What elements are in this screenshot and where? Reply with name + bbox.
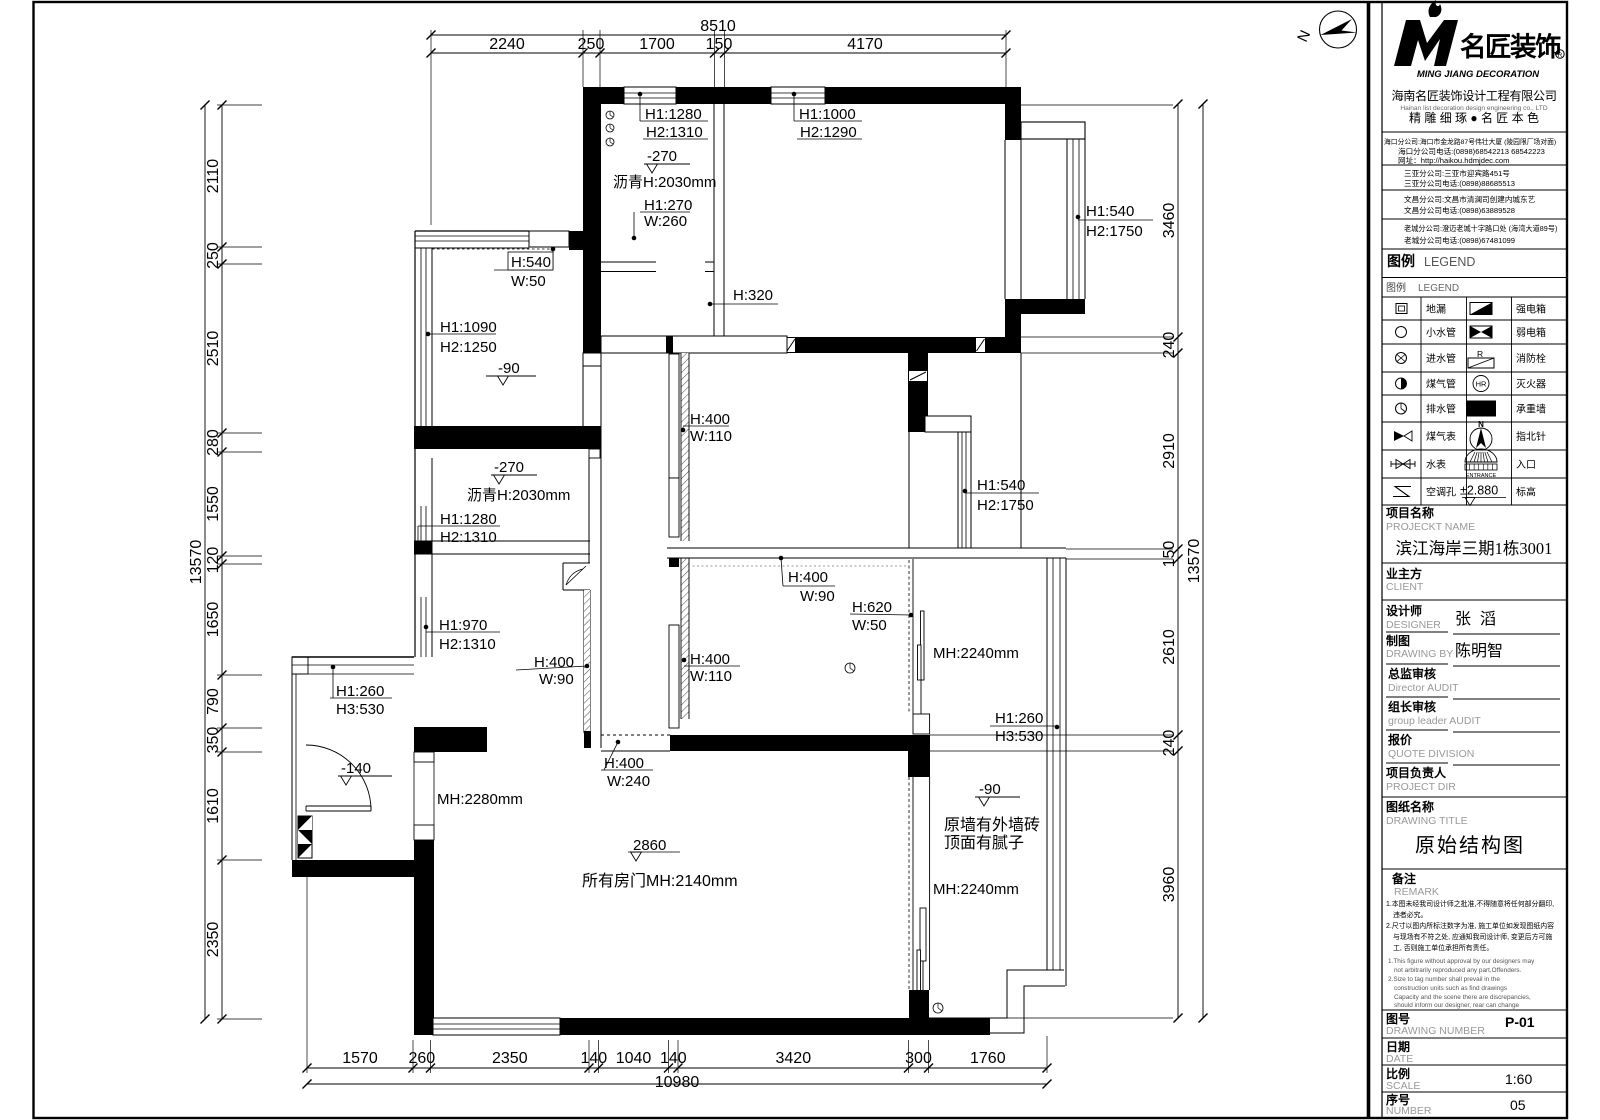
svg-text:P-01: P-01: [1505, 1014, 1535, 1030]
svg-text:老城分公司电话:(0898)67481099: 老城分公司电话:(0898)67481099: [1404, 235, 1515, 245]
svg-text:项目名称: 项目名称: [1386, 505, 1434, 520]
svg-text:海口分公司电话:(0898)68542213 6854222: 海口分公司电话:(0898)68542213 68542223: [1398, 146, 1545, 156]
svg-text:CLIENT: CLIENT: [1386, 581, 1424, 593]
svg-text:滨江海岸三期1栋3001: 滨江海岸三期1栋3001: [1396, 539, 1553, 558]
svg-text:日期: 日期: [1386, 1039, 1410, 1054]
svg-text:小水管: 小水管: [1426, 326, 1456, 339]
svg-text:DRAWING BY: DRAWING BY: [1386, 648, 1453, 660]
svg-text:construction units such as fin: construction units such as find drawings: [1394, 985, 1507, 992]
svg-text:文昌分公司:文昌市清澜司创建内城东艺: 文昌分公司:文昌市清澜司创建内城东艺: [1404, 194, 1536, 204]
svg-text:Director AUDIT: Director AUDIT: [1388, 682, 1459, 694]
svg-text:1:60: 1:60: [1505, 1071, 1532, 1087]
svg-text:图号: 图号: [1386, 1011, 1410, 1026]
svg-text:入口: 入口: [1516, 460, 1536, 471]
svg-text:group leader AUDIT: group leader AUDIT: [1388, 715, 1481, 727]
svg-text:张 滔: 张 滔: [1455, 610, 1496, 628]
svg-text:图纸名称: 图纸名称: [1386, 799, 1434, 814]
svg-text:精 雕 细 琢 ● 名 匠 本 色: 精 雕 细 琢 ● 名 匠 本 色: [1409, 110, 1539, 125]
svg-text:比例: 比例: [1386, 1066, 1410, 1081]
svg-text:工, 否则施工单位承担所有责任。: 工, 否则施工单位承担所有责任。: [1393, 943, 1493, 952]
svg-text:QUOTE DIVISION: QUOTE DIVISION: [1388, 748, 1474, 760]
svg-text:空调孔: 空调孔: [1426, 486, 1456, 499]
svg-text:煤气管: 煤气管: [1426, 378, 1456, 391]
svg-text:DATE: DATE: [1386, 1053, 1413, 1065]
svg-text:LEGEND: LEGEND: [1424, 255, 1475, 269]
svg-text:三亚分公司:三亚市迎宾路451号: 三亚分公司:三亚市迎宾路451号: [1404, 168, 1510, 178]
svg-text:MING JIANG DECORATION: MING JIANG DECORATION: [1417, 69, 1540, 80]
svg-text:PROJECT DIR: PROJECT DIR: [1386, 781, 1456, 793]
svg-text:文昌分公司电话:(0898)63889528: 文昌分公司电话:(0898)63889528: [1404, 205, 1515, 215]
svg-text:1.This figure without approval: 1.This figure without approval by our de…: [1388, 958, 1535, 965]
svg-text:R: R: [1558, 53, 1563, 59]
svg-text:REMARK: REMARK: [1394, 886, 1439, 898]
svg-text:网址：http://haikou.hdmjdec.com: 网址：http://haikou.hdmjdec.com: [1398, 155, 1509, 165]
svg-text:SCALE: SCALE: [1386, 1080, 1420, 1092]
svg-text:名匠装饰: 名匠装饰: [1460, 32, 1561, 62]
svg-text:老城分公司:澄迈老城十字路口处 (海湾大道89号): 老城分公司:澄迈老城十字路口处 (海湾大道89号): [1404, 224, 1557, 233]
svg-text:2.Size to tag number shall pre: 2.Size to tag number shall prevail in th…: [1388, 976, 1500, 983]
svg-text:业主方: 业主方: [1386, 566, 1422, 581]
svg-text:备注: 备注: [1391, 871, 1416, 886]
svg-text:制图: 制图: [1386, 633, 1410, 648]
svg-text:强电箱: 强电箱: [1516, 303, 1546, 316]
svg-text:项目负责人: 项目负责人: [1386, 765, 1447, 780]
svg-text:三亚分公司电话:(0898)88685513: 三亚分公司电话:(0898)88685513: [1404, 178, 1515, 188]
svg-text:消防栓: 消防栓: [1516, 352, 1546, 365]
svg-text:报价: 报价: [1388, 732, 1413, 747]
svg-text:违者必究。: 违者必究。: [1393, 910, 1427, 919]
svg-text:排水管: 排水管: [1426, 403, 1456, 416]
svg-text:海口分公司:海口市金龙路87号伟壮大厦 (陵园限厂场对面): 海口分公司:海口市金龙路87号伟壮大厦 (陵园限厂场对面): [1384, 137, 1556, 146]
svg-text:承重墙: 承重墙: [1516, 403, 1546, 416]
svg-text:弱电箱: 弱电箱: [1516, 326, 1546, 339]
svg-text:图例: 图例: [1386, 281, 1406, 294]
svg-text:设计师: 设计师: [1386, 603, 1422, 618]
svg-text:DRAWING NUMBER: DRAWING NUMBER: [1386, 1025, 1485, 1037]
svg-text:should inform our designer, re: should inform our designer, rear can cha…: [1394, 1002, 1519, 1009]
svg-text:原始结构图: 原始结构图: [1415, 834, 1525, 857]
svg-text:NUMBER: NUMBER: [1386, 1105, 1432, 1117]
svg-text:水表: 水表: [1426, 458, 1446, 471]
svg-text:标高: 标高: [1516, 486, 1536, 499]
svg-text:煤气表: 煤气表: [1426, 430, 1456, 443]
svg-text:Capacity and the scene there a: Capacity and the scene there are discrep…: [1394, 994, 1531, 1001]
svg-text:LEGEND: LEGEND: [1418, 283, 1459, 294]
svg-text:DESIGNER: DESIGNER: [1386, 619, 1441, 631]
svg-text:进水管: 进水管: [1426, 352, 1456, 365]
svg-text:1.本图未经我司设计师之批准,不得随意将任何部分翻印,: 1.本图未经我司设计师之批准,不得随意将任何部分翻印,: [1386, 899, 1554, 908]
svg-text:总监审核: 总监审核: [1388, 666, 1436, 681]
svg-text:2.尺寸以图内所标注数字为准, 施工单位如发现图纸内容: 2.尺寸以图内所标注数字为准, 施工单位如发现图纸内容: [1386, 921, 1554, 930]
svg-text:ENTRANCE: ENTRANCE: [1466, 473, 1497, 479]
svg-text:海南名匠装饰设计工程有限公司: 海南名匠装饰设计工程有限公司: [1391, 88, 1556, 103]
svg-text:地漏: 地漏: [1426, 303, 1446, 316]
svg-text:not arbitrarily reproduced any: not arbitrarily reproduced any part,Offe…: [1394, 967, 1522, 974]
svg-text:组长审核: 组长审核: [1388, 699, 1436, 714]
svg-text:N: N: [1478, 420, 1484, 429]
svg-text:灭火器: 灭火器: [1516, 379, 1546, 391]
svg-text:与现场有不符之处, 应通知我司设计师, 变更后方可施: 与现场有不符之处, 应通知我司设计师, 变更后方可施: [1393, 932, 1552, 941]
svg-text:R: R: [1477, 349, 1483, 359]
svg-text:DRAWING TITLE: DRAWING TITLE: [1386, 815, 1468, 827]
svg-text:HR: HR: [1476, 380, 1487, 389]
svg-text:±2.880: ±2.880: [1460, 484, 1498, 498]
svg-text:PROJECKT NAME: PROJECKT NAME: [1386, 521, 1475, 533]
svg-text:05: 05: [1510, 1097, 1526, 1113]
svg-text:指北针: 指北针: [1516, 430, 1546, 443]
svg-text:图例: 图例: [1387, 253, 1415, 269]
svg-text:陈明智: 陈明智: [1455, 642, 1503, 660]
